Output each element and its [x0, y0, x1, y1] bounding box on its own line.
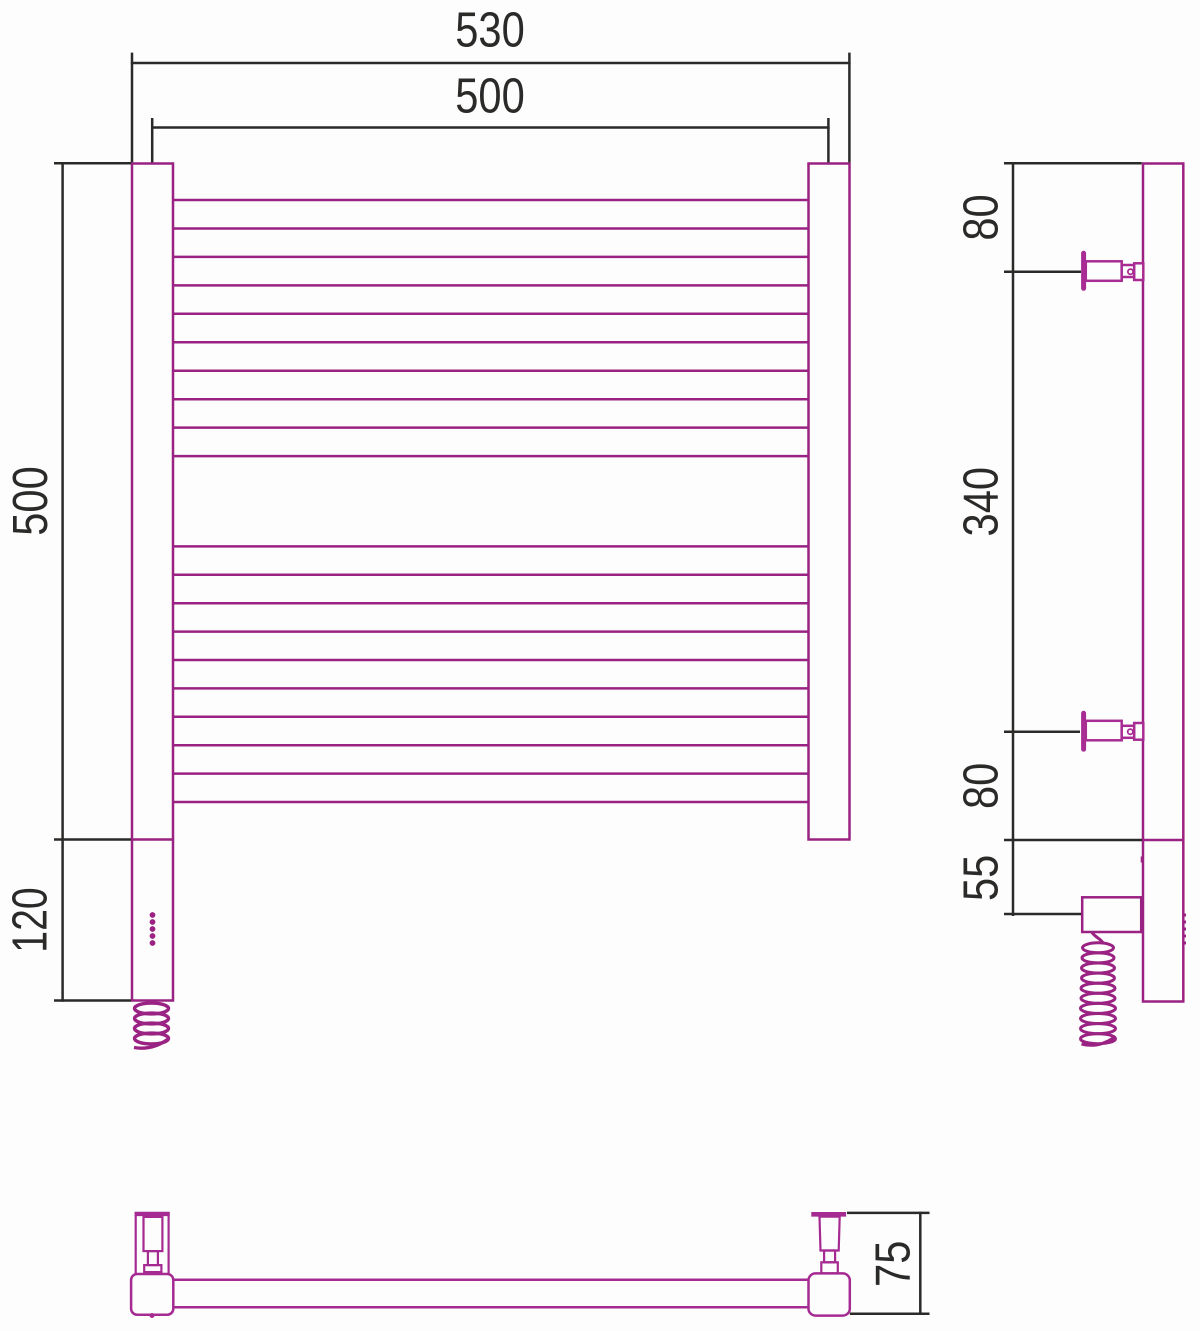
svg-text:55: 55 [954, 855, 1009, 901]
svg-text:80: 80 [954, 194, 1009, 240]
svg-text:530: 530 [455, 3, 524, 58]
svg-text:500: 500 [455, 69, 524, 124]
svg-text:340: 340 [954, 467, 1009, 536]
svg-text:120: 120 [4, 887, 58, 952]
svg-text:500: 500 [3, 466, 58, 535]
svg-text:75: 75 [865, 1241, 920, 1287]
svg-text:80: 80 [954, 763, 1009, 809]
